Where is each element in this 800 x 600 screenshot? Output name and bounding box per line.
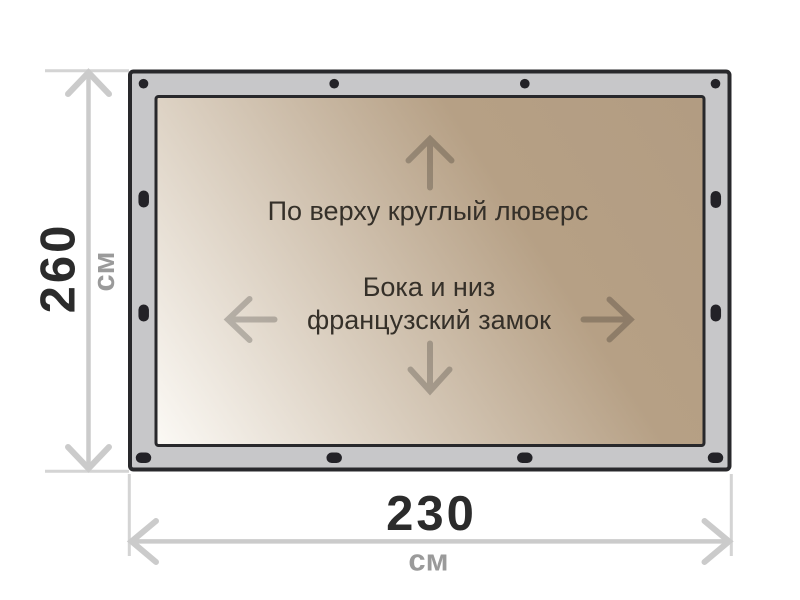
svg-text:см: см	[86, 251, 121, 291]
svg-text:французский замок: французский замок	[307, 305, 551, 335]
svg-text:230: 230	[386, 487, 477, 541]
svg-text:см: см	[408, 543, 448, 578]
svg-text:Бока и низ: Бока и низ	[363, 272, 496, 302]
svg-text:По верху круглый люверс: По верху круглый люверс	[268, 196, 589, 226]
svg-text:260: 260	[32, 223, 86, 314]
